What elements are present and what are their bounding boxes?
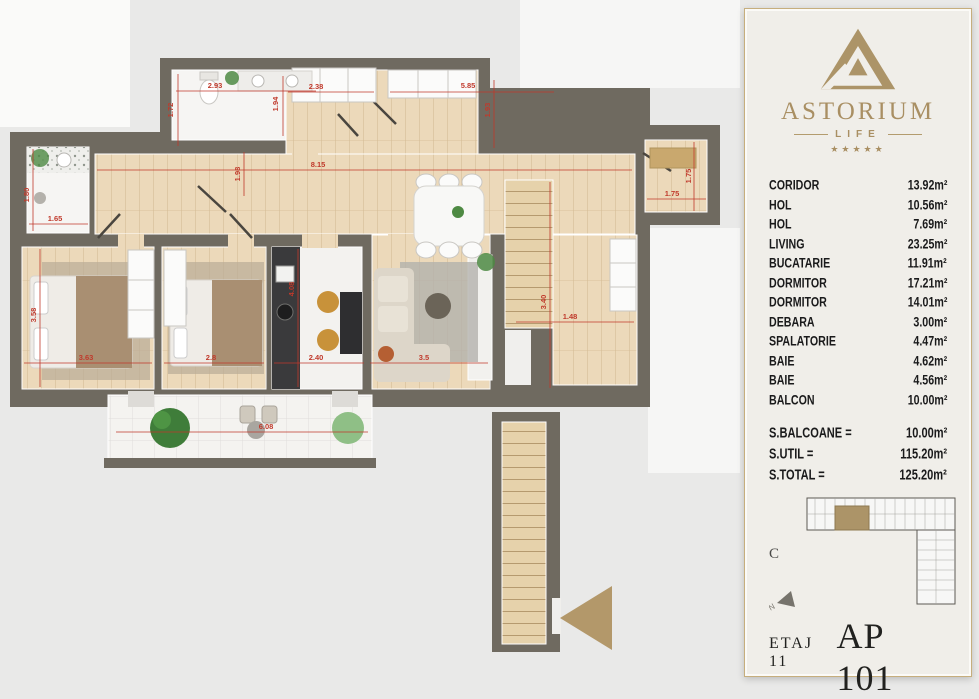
room-name: BUCATARIE [769,255,830,271]
rule-left [794,134,828,135]
rule-right [888,134,922,135]
brand-subtitle-row: LIFE [769,129,947,140]
room-name: LIVING [769,235,805,251]
dim-label: 4.08 [287,282,296,297]
total-label: S.UTIL = [769,446,813,462]
brand-triangle-icon [819,27,897,91]
keyplan-highlight-unit [835,506,869,530]
balcony-door-2 [332,391,358,407]
dim-label: 1.75 [684,169,693,184]
info-panel: ASTORIUM LIFE ★★★★★ CORIDOR13.92m² HOL10… [744,8,972,677]
room-name: BALCON [769,391,815,407]
shaft-door [552,598,561,634]
balcony-door-1 [128,391,154,407]
dim-label: 1.80 [22,188,31,203]
dim-label: 3.40 [539,295,548,310]
room-area: 11.91m² [908,255,947,271]
room-area: 3.00m² [913,313,947,329]
room-name: BAIE [769,372,794,388]
room-name: CORIDOR [769,177,819,193]
corridor-floor [95,154,635,234]
room-area: 4.56m² [913,372,947,388]
room-row: HOL7.69m² [769,214,947,234]
dim-label: 8.15 [311,160,326,169]
keyplan-map [787,492,967,610]
total-row: S.UTIL =115.20m² [769,443,947,464]
total-label: S.BALCOANE = [769,425,852,441]
dining-table-icon [414,174,484,258]
bg-patch-topleft [0,0,130,127]
room-area: 17.21m² [907,274,947,290]
exterior-staircase [502,422,546,644]
room-row: LIVING23.25m² [769,234,947,254]
dim-label: 3.63 [79,353,94,362]
dim-label: 1.75 [665,189,680,198]
floorplan-page: 2.93 1.72 2.38 1.94 5.85 1.93 8.15 1.98 … [0,0,979,692]
total-value: 125.20m² [900,467,947,483]
star-rating-icon: ★★★★★ [769,144,947,155]
total-value: 10.00m² [906,425,947,441]
floor-label: ETAJ 11 [769,635,837,671]
room-name: SPALATORIE [769,333,836,349]
room-row: HOL10.56m² [769,195,947,215]
room-name: DORMITOR [769,274,827,290]
panel-footer: ETAJ 11 AP 101 [769,615,947,699]
room-area: 13.92m² [907,177,947,193]
dim-label: 6.08 [259,422,274,431]
dim-label: 5.85 [461,81,476,90]
dim-label: 1.94 [271,96,280,111]
room-row: BAIE4.62m² [769,351,947,371]
total-row: S.TOTAL =125.20m² [769,464,947,485]
dim-label: 3.5 [419,353,429,362]
dim-label: 1.48 [563,312,578,321]
dim-label: 3.58 [29,308,38,323]
bg-patch-right [648,228,740,473]
dim-label: 2.38 [309,82,324,91]
balcony-railing [104,458,376,468]
brand-name: ASTORIUM [769,98,947,126]
building-keyplan: C N [769,492,947,615]
room-area: 4.62m² [913,352,947,368]
room-row: DEBARA3.00m² [769,312,947,332]
room-row: BALCON10.00m² [769,390,947,410]
room-row: BUCATARIE11.91m² [769,253,947,273]
total-label: S.TOTAL = [769,467,825,483]
dim-label: 1.98 [233,167,242,182]
room-area-list: CORIDOR13.92m² HOL10.56m² HOL7.69m² LIVI… [769,175,947,409]
room-row: CORIDOR13.92m² [769,175,947,195]
totals-block: S.BALCOANE =10.00m² S.UTIL =115.20m² S.T… [769,422,947,485]
room-name: DEBARA [769,313,815,329]
compass-label: N [769,602,777,611]
section-label: C [769,546,779,563]
total-value: 115.20m² [900,446,947,462]
room-row: BAIE4.56m² [769,370,947,390]
dim-label: 1.93 [483,103,492,118]
room-row: DORMITOR14.01m² [769,292,947,312]
dim-label: 2.8 [206,353,216,362]
room-name: HOL [769,196,792,212]
dim-label: 2.40 [309,353,324,362]
room-name: BAIE [769,352,794,368]
north-arrow-icon: N [769,591,795,611]
room-row: DORMITOR17.21m² [769,273,947,293]
dim-label: 1.65 [48,214,63,223]
room-name: HOL [769,216,792,232]
brand-subtitle: LIFE [835,129,881,140]
room-name: DORMITOR [769,294,827,310]
total-row: S.BALCOANE =10.00m² [769,422,947,443]
dim-label: 1.72 [166,103,175,118]
room-area: 10.00m² [907,391,947,407]
room-area: 23.25m² [907,235,947,251]
room-area: 4.47m² [913,333,947,349]
floorplan-drawing: 2.93 1.72 2.38 1.94 5.85 1.93 8.15 1.98 … [0,0,740,692]
room-area: 7.69m² [913,216,947,232]
room-row: SPALATORIE4.47m² [769,331,947,351]
dim-label: 2.93 [208,81,223,90]
brand-logo: ASTORIUM LIFE ★★★★★ [769,27,947,155]
room-area: 14.01m² [907,294,947,310]
bg-patch-topright [520,0,740,88]
apartment-label: AP 101 [837,615,948,699]
room-area: 10.56m² [907,196,947,212]
